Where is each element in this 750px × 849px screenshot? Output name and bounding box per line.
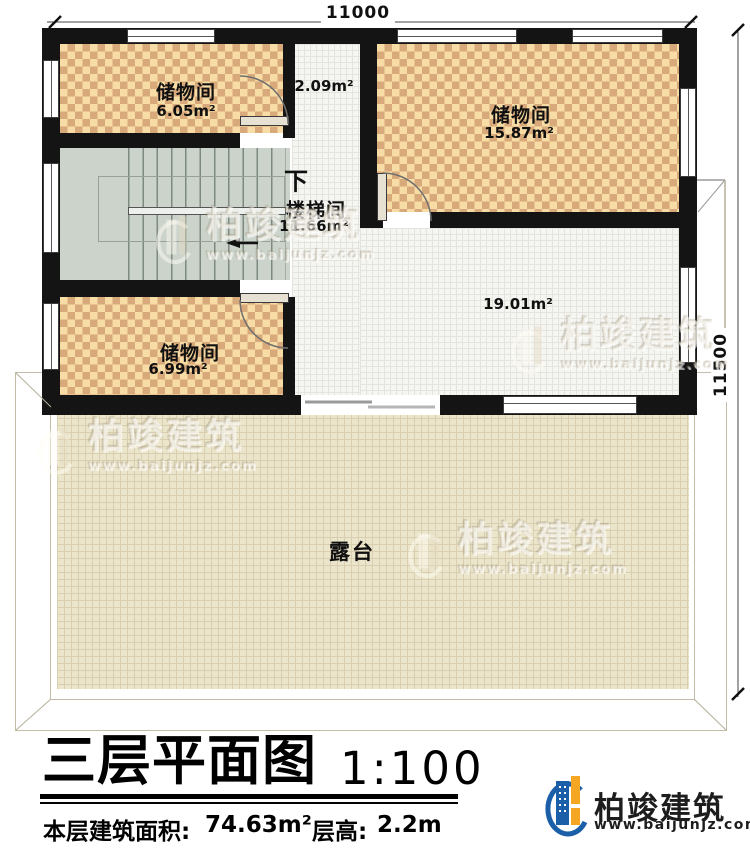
plan-title: 三层平面图 <box>42 733 317 790</box>
window-top-1 <box>127 29 215 43</box>
door-leaf-storage-bl <box>240 293 289 303</box>
title-underline-thin <box>40 802 458 804</box>
wall-bl-hall <box>283 297 295 395</box>
dim-label-right: 11500 <box>711 328 731 402</box>
dim-tick-right-top <box>732 24 744 36</box>
window-right-1 <box>680 88 696 177</box>
label-stairwell-area: 11.66m² <box>279 217 349 235</box>
dim-tick-top-left <box>49 16 61 28</box>
wall-stair-bl <box>42 280 240 297</box>
window-left-3 <box>43 303 59 370</box>
floor-height-value: 2.2m <box>377 812 442 838</box>
window-top-2 <box>397 29 517 43</box>
floor-area-label: 本层建筑面积: <box>43 812 190 846</box>
door-leaf-storage-tl <box>240 116 289 126</box>
label-storage-bl-area: 6.99m² <box>148 360 207 378</box>
brand-logo-icon <box>543 768 589 838</box>
label-storage-tr-area: 15.87m² <box>484 124 554 142</box>
window-bottom <box>503 396 637 414</box>
floor-height-label: 层高: <box>312 812 367 846</box>
label-stair-down: 下 <box>284 162 308 197</box>
dim-label-top: 11000 <box>321 3 395 23</box>
door-leaf-storage-tr <box>377 173 387 221</box>
plan-scale: 1:100 <box>340 742 485 795</box>
window-left-2 <box>43 163 59 253</box>
window-left-1 <box>43 60 59 118</box>
brand-url: www.baijunjz.com <box>594 817 750 833</box>
terrace-door-opening <box>301 395 440 415</box>
door-b-opening <box>383 212 430 228</box>
label-storage-tl-area: 6.05m² <box>156 102 215 120</box>
stair-railing <box>128 207 286 215</box>
dim-tick-right-bottom <box>732 688 744 700</box>
floor-plan-canvas: 储物间 6.05m² 2.09m² 储物间 15.87m² 下 楼梯间 11.6… <box>0 0 750 849</box>
label-terrace-name: 露台 <box>329 536 375 566</box>
canopy-diagonal <box>698 180 725 212</box>
window-top-3 <box>572 29 663 43</box>
wall-tl-stair <box>42 133 240 148</box>
title-underline-thick <box>40 794 458 799</box>
label-corridor-area: 2.09m² <box>294 77 353 95</box>
floor-area-value: 74.63m² <box>205 812 312 838</box>
wall-corridor-tr <box>360 28 377 228</box>
window-right-2 <box>680 267 696 363</box>
label-hall-area: 19.01m² <box>483 295 553 313</box>
label-storage-tl-name: 储物间 <box>156 78 216 105</box>
dim-tick-top-right <box>685 16 697 28</box>
